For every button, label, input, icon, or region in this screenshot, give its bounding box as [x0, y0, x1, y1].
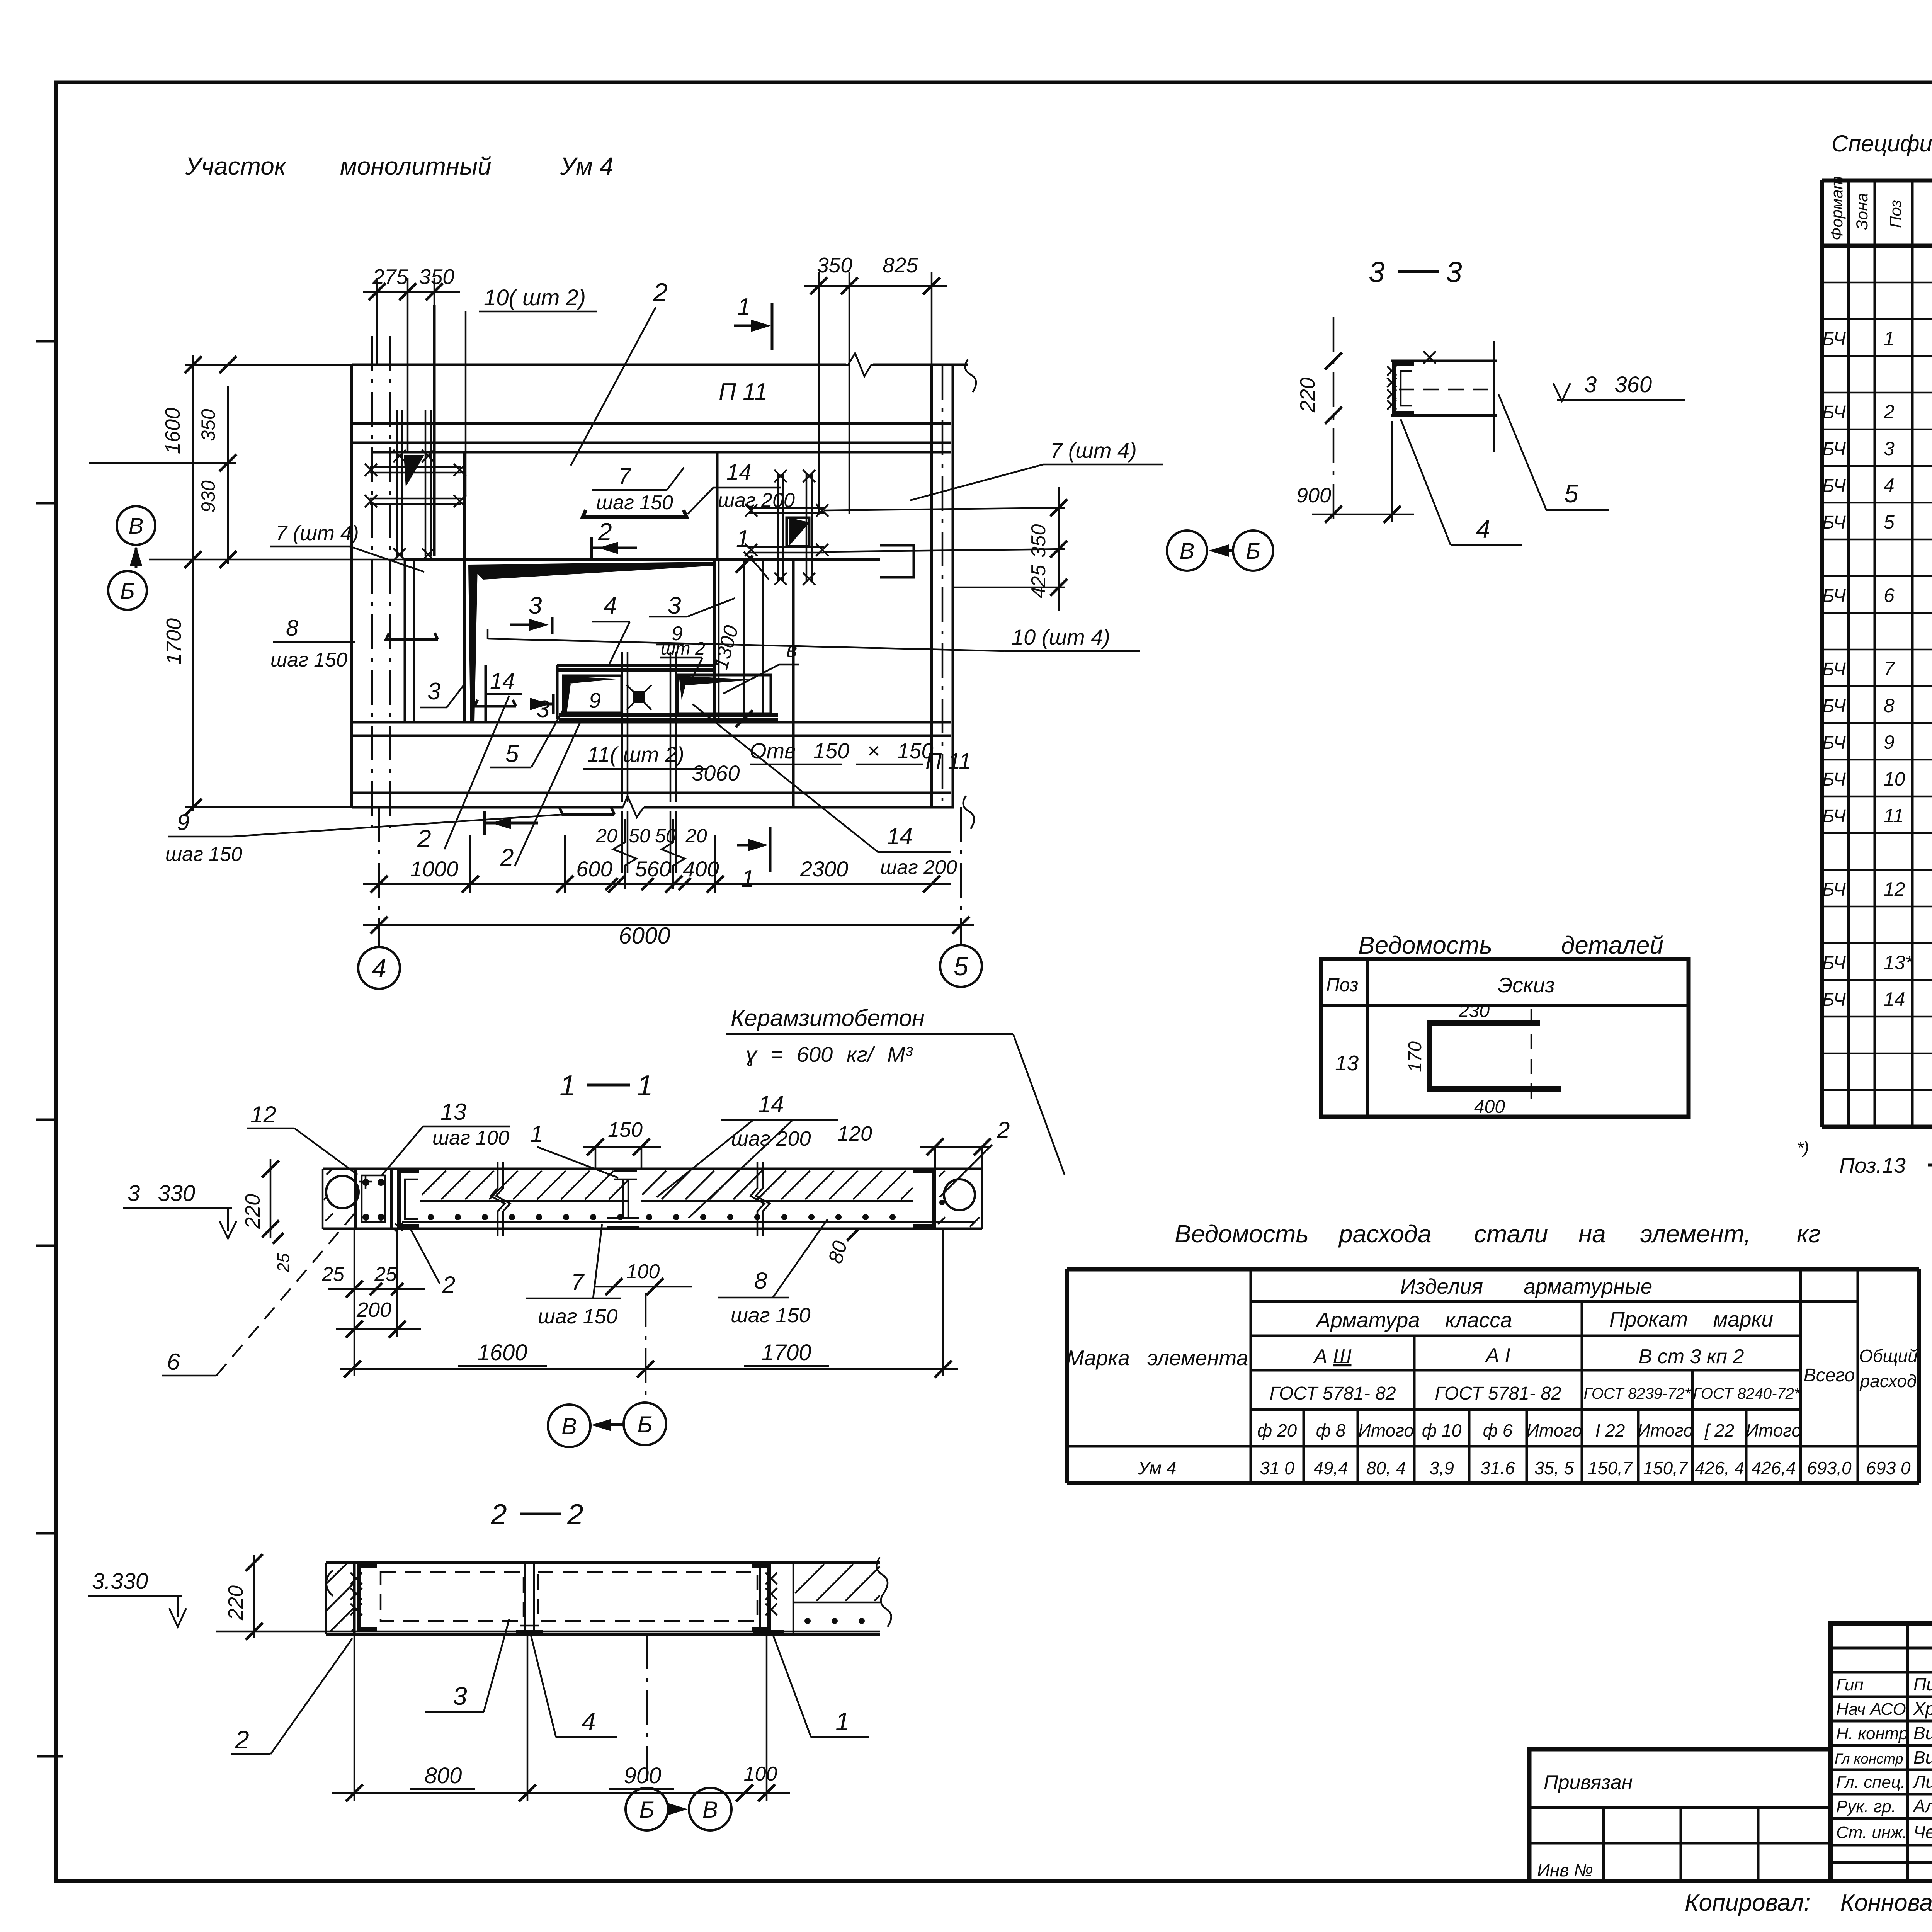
svg-text:ГОСТ 8239-72*: ГОСТ 8239-72* [1583, 1385, 1691, 1402]
svg-text:4: 4 [1476, 515, 1490, 543]
svg-text:1: 1 [737, 294, 750, 320]
svg-text:БЧ: БЧ [1822, 586, 1846, 606]
svg-text:8: 8 [754, 1268, 767, 1294]
svg-text:БЧ: БЧ [1822, 879, 1846, 900]
svg-text:ф 6: ф 6 [1483, 1420, 1513, 1440]
svg-text:Ум 4: Ум 4 [1138, 1458, 1177, 1478]
svg-text:3.330: 3.330 [92, 1569, 148, 1594]
svg-text:шаг 200: шаг 200 [731, 1127, 811, 1150]
svg-text:Б: Б [120, 578, 135, 604]
svg-text:11( шт 2): 11( шт 2) [587, 742, 684, 767]
svg-text:В: В [702, 1797, 718, 1823]
svg-text:150: 150 [608, 1118, 643, 1141]
svg-text:100: 100 [626, 1260, 660, 1283]
svg-text:Эскиз: Эскиз [1498, 973, 1555, 997]
svg-text:3: 3 [1884, 438, 1895, 459]
svg-text:Нач АСО: Нач АСО [1836, 1700, 1906, 1719]
svg-text:2: 2 [490, 1498, 507, 1531]
svg-text:ф 10: ф 10 [1422, 1420, 1462, 1440]
svg-text:930: 930 [197, 480, 219, 513]
svg-text:3 360: 3 360 [1584, 372, 1652, 397]
svg-text:825: 825 [883, 253, 918, 277]
svg-text:2: 2 [567, 1498, 583, 1531]
svg-text:Поз: Поз [1326, 975, 1358, 995]
svg-text:425: 425 [1027, 565, 1050, 599]
svg-text:в: в [786, 638, 797, 662]
svg-text:БЧ: БЧ [1822, 659, 1846, 680]
svg-text:2: 2 [598, 518, 612, 546]
svg-text:А Ш: А Ш [1313, 1345, 1351, 1368]
svg-text:150,7: 150,7 [1643, 1458, 1688, 1478]
svg-text:Итого: Итого [1638, 1420, 1693, 1440]
svg-text:БЧ: БЧ [1822, 402, 1846, 423]
svg-text:350: 350 [419, 265, 454, 289]
svg-text:1: 1 [560, 1069, 576, 1102]
svg-text:Б: Б [639, 1797, 654, 1823]
svg-text:расход: расход [1859, 1371, 1917, 1391]
svg-text:25: 25 [274, 1253, 293, 1272]
svg-text:9: 9 [589, 688, 601, 713]
svg-text:2: 2 [1883, 401, 1895, 423]
svg-text:БЧ: БЧ [1822, 990, 1846, 1010]
svg-text:13: 13 [440, 1099, 466, 1125]
svg-text:5: 5 [1884, 511, 1895, 533]
svg-text:Спецификацияучасткамонолитного: СпецификацияучасткамонолитногоУм 4 [1832, 131, 1932, 156]
svg-text:*): *) [1797, 1138, 1809, 1157]
svg-text:230: 230 [1458, 1001, 1490, 1021]
svg-text:Керамзитобетон: Керамзитобетон [731, 1005, 925, 1031]
svg-text:Итого: Итого [1358, 1420, 1414, 1440]
svg-text:Инв №: Инв № [1537, 1860, 1593, 1880]
svg-text:9: 9 [1884, 731, 1895, 753]
svg-text:Ведомостьрасходасталинаэлемент: Ведомостьрасходасталинаэлемент,кг [1175, 1220, 1821, 1248]
svg-text:шаг 150: шаг 150 [731, 1304, 811, 1327]
svg-text:6000: 6000 [619, 923, 670, 949]
svg-text:10 (шт 4): 10 (шт 4) [1012, 625, 1110, 649]
svg-text:БЧ: БЧ [1822, 806, 1846, 827]
svg-text:350: 350 [1027, 524, 1050, 558]
svg-text:693 0: 693 0 [1866, 1458, 1911, 1478]
svg-text:7 (шт 4): 7 (шт 4) [1050, 438, 1137, 463]
svg-text:120: 120 [837, 1122, 872, 1145]
svg-text:3060: 3060 [692, 761, 740, 785]
svg-text:П 11: П 11 [719, 379, 768, 405]
svg-text:Поз: Поз [1886, 200, 1905, 228]
svg-text:12: 12 [1884, 878, 1905, 900]
svg-text:В: В [129, 514, 144, 539]
svg-text:5: 5 [1564, 479, 1578, 508]
svg-text:Ст. инж.: Ст. инж. [1836, 1823, 1907, 1842]
svg-text:Поз.13: Поз.13 [1839, 1153, 1906, 1177]
svg-text:426,4: 426,4 [1751, 1458, 1796, 1478]
svg-text:3: 3 [536, 696, 549, 723]
svg-text:Итого: Итого [1746, 1420, 1801, 1440]
svg-text:2: 2 [417, 825, 431, 852]
svg-text:Отв 150 × 150: Отв 150 × 150 [750, 738, 934, 763]
svg-text:1: 1 [1884, 328, 1895, 349]
svg-text:170: 170 [1405, 1041, 1425, 1072]
svg-text:14: 14 [490, 668, 515, 694]
svg-text:шаг 150: шаг 150 [596, 492, 673, 514]
svg-text:1000: 1000 [410, 857, 459, 881]
svg-text:11: 11 [1884, 805, 1904, 827]
svg-text:3: 3 [529, 592, 542, 619]
svg-text:426, 4: 426, 4 [1695, 1458, 1744, 1478]
svg-text:1600: 1600 [477, 1340, 527, 1365]
svg-text:шаг 150: шаг 150 [538, 1305, 618, 1328]
svg-text:14: 14 [887, 823, 913, 849]
svg-text:3: 3 [1446, 256, 1462, 288]
svg-text:Гип: Гип [1836, 1675, 1864, 1694]
svg-text:1: 1 [835, 1707, 850, 1736]
svg-text:600: 600 [576, 857, 612, 881]
svg-text:150,7: 150,7 [1588, 1458, 1633, 1478]
svg-text:Марка элемента: Марка элемента [1066, 1346, 1248, 1370]
svg-text:13: 13 [1335, 1051, 1359, 1075]
svg-text:50: 50 [655, 825, 677, 847]
svg-text:1700: 1700 [162, 618, 185, 665]
svg-text:3: 3 [668, 592, 681, 619]
svg-text:4: 4 [372, 954, 386, 983]
svg-text:400: 400 [683, 857, 719, 881]
svg-text:800: 800 [425, 1763, 462, 1788]
svg-text:20: 20 [685, 825, 707, 847]
svg-text:[ 22: [ 22 [1704, 1420, 1735, 1440]
svg-text:220: 220 [224, 1585, 247, 1621]
svg-text:4: 4 [1884, 474, 1895, 496]
svg-text:1700: 1700 [761, 1340, 811, 1365]
svg-text:Привязан: Привязан [1544, 1771, 1633, 1794]
svg-text:350: 350 [817, 253, 852, 277]
svg-text:Лисичкин: Лисичкин [1912, 1772, 1932, 1792]
svg-text:400: 400 [1474, 1097, 1505, 1117]
svg-text:3: 3 [1369, 256, 1385, 288]
svg-text:13*: 13* [1884, 952, 1913, 973]
svg-text:ГОСТ 5781- 82: ГОСТ 5781- 82 [1269, 1383, 1396, 1404]
svg-text:220: 220 [1296, 378, 1319, 413]
svg-text:7: 7 [571, 1269, 585, 1295]
svg-text:100: 100 [744, 1763, 777, 1785]
svg-text:шт 2: шт 2 [661, 638, 705, 658]
svg-text:Всего: Всего [1804, 1365, 1855, 1386]
svg-text:Арматура класса: Арматура класса [1315, 1308, 1512, 1332]
svg-text:Рук. гр.: Рук. гр. [1836, 1797, 1896, 1816]
svg-text:БЧ: БЧ [1822, 769, 1846, 790]
svg-text:25: 25 [374, 1263, 397, 1286]
svg-text:Винклер: Винклер [1913, 1723, 1932, 1743]
svg-text:В ст 3 кп 2: В ст 3 кп 2 [1639, 1345, 1744, 1368]
svg-text:350: 350 [197, 409, 219, 441]
svg-text:Винклер: Винклер [1913, 1747, 1932, 1767]
svg-text:80, 4: 80, 4 [1366, 1458, 1406, 1478]
svg-text:2: 2 [235, 1725, 249, 1754]
svg-text:БЧ: БЧ [1822, 476, 1846, 496]
svg-text:3,9: 3,9 [1429, 1458, 1454, 1478]
svg-text:БЧ: БЧ [1822, 696, 1846, 716]
svg-text:1: 1 [637, 1069, 653, 1102]
svg-text:3: 3 [453, 1682, 467, 1710]
svg-text:шаг 200: шаг 200 [718, 489, 795, 512]
svg-text:12: 12 [250, 1102, 276, 1128]
svg-text:220: 220 [241, 1194, 264, 1229]
svg-text:25: 25 [321, 1263, 345, 1286]
svg-text:900: 900 [624, 1763, 662, 1788]
svg-text:1: 1 [530, 1121, 543, 1147]
svg-text:В: В [561, 1413, 577, 1439]
svg-text:А I: А I [1485, 1344, 1510, 1367]
svg-text:Общий: Общий [1859, 1346, 1918, 1366]
svg-text:2300: 2300 [800, 857, 849, 881]
svg-text:Формат: Формат [1828, 176, 1846, 240]
svg-text:I 22: I 22 [1595, 1420, 1625, 1440]
svg-text:20: 20 [595, 825, 617, 847]
svg-text:БЧ: БЧ [1822, 953, 1846, 973]
svg-text:200: 200 [356, 1298, 391, 1321]
svg-text:ɣ = 600 кг/ М³: ɣ = 600 кг/ М³ [746, 1042, 913, 1066]
svg-text:6: 6 [1884, 585, 1895, 606]
svg-text:4: 4 [582, 1707, 596, 1736]
svg-text:1: 1 [736, 526, 749, 552]
svg-text:БЧ: БЧ [1822, 733, 1846, 753]
svg-text:БЧ: БЧ [1822, 329, 1846, 349]
svg-text:49,4: 49,4 [1313, 1458, 1348, 1478]
svg-text:7 (шт 4): 7 (шт 4) [276, 522, 359, 545]
svg-text:Гл констр: Гл констр [1835, 1751, 1903, 1767]
svg-text:В: В [1180, 539, 1195, 564]
svg-text:900: 900 [1296, 484, 1331, 507]
svg-text:8: 8 [286, 616, 298, 641]
svg-text:ГОСТ 8240-72*: ГОСТ 8240-72* [1693, 1385, 1800, 1402]
svg-text:Прокат марки: Прокат марки [1609, 1307, 1773, 1331]
svg-text:693,0: 693,0 [1807, 1458, 1852, 1478]
svg-text:шаг 200: шаг 200 [880, 856, 957, 879]
svg-text:БЧ: БЧ [1822, 512, 1846, 533]
svg-text:7: 7 [618, 464, 632, 489]
svg-text:шаг 100: шаг 100 [432, 1127, 509, 1149]
svg-text:ГОСТ 5781- 82: ГОСТ 5781- 82 [1435, 1383, 1561, 1404]
svg-text:2: 2 [653, 278, 668, 307]
svg-text:1600: 1600 [161, 408, 184, 454]
svg-text:14: 14 [758, 1091, 784, 1117]
svg-text:Б: Б [637, 1412, 652, 1437]
svg-text:35, 5: 35, 5 [1534, 1458, 1574, 1478]
svg-text:Б: Б [1246, 539, 1260, 564]
svg-text:шаг 150: шаг 150 [165, 843, 242, 866]
svg-text:10( шт 2): 10( шт 2) [484, 285, 586, 310]
svg-text:ф 8: ф 8 [1316, 1420, 1346, 1440]
svg-text:8: 8 [1884, 695, 1895, 716]
svg-text:2: 2 [500, 844, 514, 871]
svg-text:5: 5 [505, 741, 519, 767]
svg-text:3: 3 [427, 678, 440, 705]
svg-text:П 11: П 11 [925, 749, 971, 774]
svg-text:Гл. спец.: Гл. спец. [1836, 1773, 1905, 1792]
svg-text:31.6: 31.6 [1480, 1458, 1515, 1478]
svg-text:Алёхова: Алёхова [1912, 1796, 1932, 1816]
svg-text:14: 14 [1884, 988, 1905, 1010]
svg-text:2: 2 [997, 1117, 1010, 1143]
svg-text:Итого: Итого [1526, 1420, 1582, 1440]
svg-text:1: 1 [741, 866, 754, 892]
svg-text:шаг 150: шаг 150 [270, 649, 347, 671]
svg-text:3 330: 3 330 [128, 1181, 195, 1206]
svg-text:10: 10 [1884, 768, 1905, 790]
svg-text:Зона: Зона [1853, 193, 1871, 230]
svg-text:4: 4 [604, 592, 617, 619]
svg-text:БЧ: БЧ [1822, 439, 1846, 459]
svg-text:7: 7 [1884, 658, 1895, 680]
svg-text:2: 2 [442, 1272, 455, 1298]
svg-text:Копировал: Коннова: Копировал: Коннова [1685, 1889, 1932, 1916]
svg-text:275: 275 [372, 265, 408, 289]
svg-text:6: 6 [167, 1349, 180, 1375]
svg-text:50: 50 [629, 825, 650, 847]
svg-text:Изделия арматурные: Изделия арматурные [1400, 1274, 1653, 1298]
svg-text:Н. контр: Н. контр [1836, 1724, 1908, 1743]
svg-text:Пивторяк: Пивторяк [1913, 1674, 1932, 1694]
svg-text:Черкасова: Черкасова [1913, 1822, 1932, 1842]
svg-text:ф 20: ф 20 [1257, 1420, 1297, 1440]
svg-text:Хрупало: Хрупало [1913, 1699, 1932, 1719]
svg-text:14: 14 [726, 460, 752, 485]
svg-text:31 0: 31 0 [1260, 1458, 1294, 1478]
svg-text:5: 5 [954, 952, 968, 981]
